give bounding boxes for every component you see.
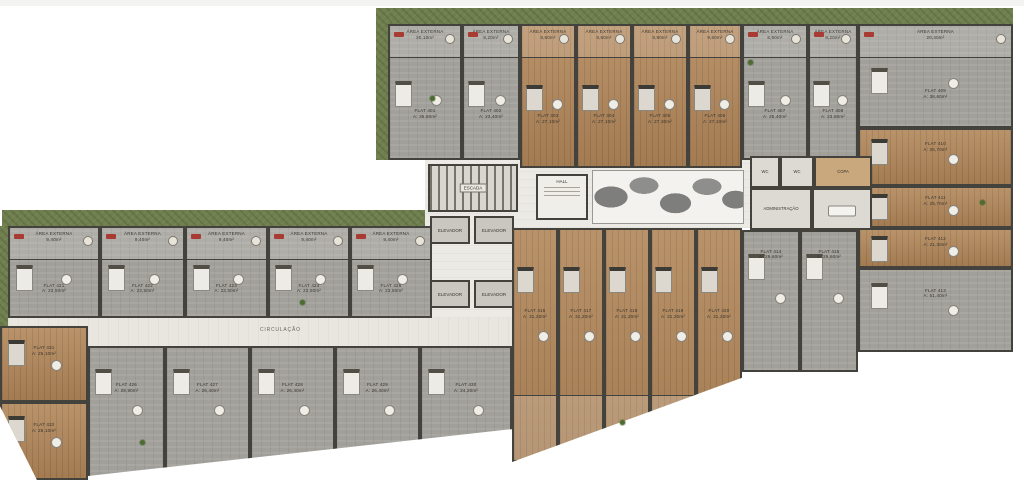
flat-unit-flat-410: FLAT 410A: 25,70m² <box>858 128 1013 186</box>
table-icon <box>615 34 625 44</box>
table-icon <box>780 95 791 106</box>
elevator-3: ELEVADOR <box>430 280 470 308</box>
flat-label: FLAT 425A: 23,50m² <box>352 283 430 295</box>
admin-copa: COPA <box>814 156 872 188</box>
sofa-icon <box>748 32 758 37</box>
flat-unit-flat-405: ÁREA EXTERNA9,80m²FLAT 405A: 27,30m² <box>632 24 688 168</box>
flat-label: FLAT 418A: 31,20m² <box>606 308 648 320</box>
table-icon <box>719 99 730 110</box>
flat-label: FLAT 422A: 23,50m² <box>102 283 183 295</box>
balcony: ÁREA EXTERNA9,40m² <box>102 228 183 260</box>
flat-label: FLAT 424A: 23,50m² <box>270 283 348 295</box>
table-icon <box>168 236 178 246</box>
staircase: ESCADA <box>428 164 518 212</box>
table-icon <box>791 34 801 44</box>
table-icon <box>841 34 851 44</box>
table-icon <box>608 99 619 110</box>
hall-sign: HALL <box>536 174 588 220</box>
flat-unit-flat-425: ÁREA EXTERNA9,40m²FLAT 425A: 23,50m² <box>350 226 432 318</box>
bed-icon <box>468 81 485 107</box>
flat-label: FLAT 412A: 21,30m² <box>860 236 1011 248</box>
flat-unit-flat-402: ÁREA EXTERNA8,20m²FLAT 402A: 23,40m² <box>462 24 520 160</box>
flat-label: FLAT 416A: 31,20m² <box>514 308 556 320</box>
table-icon <box>503 34 513 44</box>
table-icon <box>51 360 62 371</box>
table-icon <box>833 293 844 304</box>
flat-label: FLAT 406A: 27,10m² <box>690 113 740 125</box>
sofa-icon <box>274 234 284 239</box>
table-icon <box>996 34 1006 44</box>
flat-label: FLAT 413A: 61,40m² <box>860 288 1011 300</box>
balcony: ÁREA EXTERNA9,40m² <box>187 228 266 260</box>
table-icon <box>948 154 959 165</box>
table-icon <box>333 236 343 246</box>
flat-label: FLAT 423A: 23,50m² <box>187 283 266 295</box>
plant-icon <box>980 200 985 205</box>
flat-label: FLAT 404A: 27,10m² <box>578 113 630 125</box>
bed-icon <box>748 81 765 107</box>
floorplan: CIRCULAÇÃO ÁREA EXTERNA30,10m²FLAT 401A:… <box>0 0 1024 496</box>
balcony: ÁREA EXTERNA9,40m² <box>270 228 348 260</box>
table-icon <box>584 331 595 342</box>
balcony: ÁREA EXTERNA9,60m² <box>690 26 740 58</box>
table-icon <box>251 236 261 246</box>
flat-unit-flat-421: ÁREA EXTERNA9,40m²FLAT 421A: 23,50m² <box>8 226 100 318</box>
flat-unit-flat-413: FLAT 413A: 61,40m² <box>858 268 1013 352</box>
sofa-icon <box>191 234 201 239</box>
sofa-icon <box>394 32 404 37</box>
flat-label: FLAT 415A: 29,60m² <box>802 249 856 261</box>
table-icon <box>676 331 687 342</box>
flat-unit-flat-422: ÁREA EXTERNA9,40m²FLAT 422A: 23,50m² <box>100 226 185 318</box>
plant-icon <box>140 440 145 445</box>
sofa-icon <box>814 32 824 37</box>
hall-mosaic-floor <box>592 170 744 224</box>
table-icon <box>559 34 569 44</box>
flat-label: FLAT 403A: 27,10m² <box>522 113 574 125</box>
balcony: ÁREA EXTERNA9,40m² <box>352 228 430 260</box>
bed-icon <box>517 267 534 293</box>
table-icon <box>384 405 395 416</box>
balcony: ÁREA EXTERNA30,10m² <box>390 26 460 58</box>
table-icon <box>671 34 681 44</box>
flat-label: FLAT 407A: 25,40m² <box>744 108 806 120</box>
balcony: ÁREA EXTERNA9,40m² <box>10 228 98 260</box>
table-icon <box>722 331 733 342</box>
flat-unit-flat-416: FLAT 416A: 31,20m² <box>512 228 558 462</box>
table-icon <box>630 331 641 342</box>
flat-unit-flat-407: ÁREA EXTERNA8,90m²FLAT 407A: 25,40m² <box>742 24 808 160</box>
flat-unit-flat-409: ÁREA EXTERNA20,40m²FLAT 409A: 38,60m² <box>858 24 1013 128</box>
balcony: ÁREA EXTERNA8,90m² <box>744 26 806 58</box>
bed-icon <box>526 85 543 111</box>
flat-label: FLAT 421A: 23,50m² <box>10 283 98 295</box>
table-icon <box>837 95 848 106</box>
flat-unit-flat-423: ÁREA EXTERNA9,40m²FLAT 423A: 23,50m² <box>185 226 268 318</box>
flat-label: FLAT 405A: 27,30m² <box>634 113 686 125</box>
bed-icon <box>395 81 412 107</box>
table-icon <box>552 99 563 110</box>
table-icon <box>495 95 506 106</box>
plant-icon <box>300 300 305 305</box>
flat-label: FLAT 409A: 38,60m² <box>860 88 1011 100</box>
sofa-icon <box>106 234 116 239</box>
flat-unit-flat-408: ÁREA EXTERNA8,20m²FLAT 408A: 23,80m² <box>808 24 858 160</box>
bed-icon <box>563 267 580 293</box>
table-icon <box>51 437 62 448</box>
flat-label: FLAT 417A: 31,20m² <box>560 308 602 320</box>
plant-icon <box>620 420 625 425</box>
flat-label: FLAT 414A: 29,60m² <box>744 249 798 261</box>
plant-icon <box>748 60 753 65</box>
balcony: ÁREA EXTERNA8,20m² <box>810 26 856 58</box>
balcony: ÁREA EXTERNA9,60m² <box>578 26 630 58</box>
bed-icon <box>694 85 711 111</box>
sofa-icon <box>468 32 478 37</box>
sofa-icon <box>864 32 874 37</box>
flat-label: FLAT 432A: 25,10m² <box>2 422 86 434</box>
flat-unit-flat-401: ÁREA EXTERNA30,10m²FLAT 401A: 35,80m² <box>388 24 462 160</box>
sofa-icon <box>14 234 24 239</box>
elevator-2: ELEVADOR <box>474 216 514 244</box>
flat-label: FLAT 420A: 31,20m² <box>698 308 740 320</box>
admin-wc2: WC <box>780 156 814 188</box>
flat-unit-flat-414: FLAT 414A: 29,60m² <box>742 230 800 372</box>
flat-label: FLAT 430A: 24,20m² <box>422 382 510 394</box>
sofa-icon <box>356 234 366 239</box>
bed-icon <box>638 85 655 111</box>
flat-label: FLAT 419A: 31,20m² <box>652 308 694 320</box>
flat-label: FLAT 408A: 23,80m² <box>810 108 856 120</box>
flat-unit-flat-403: ÁREA EXTERNA9,60m²FLAT 403A: 27,10m² <box>520 24 576 168</box>
table-icon <box>725 34 735 44</box>
table-icon <box>775 293 786 304</box>
elevator-1: ELEVADOR <box>430 216 470 244</box>
flat-label: FLAT 402A: 23,40m² <box>464 108 518 120</box>
balcony: ÁREA EXTERNA9,60m² <box>522 26 574 58</box>
flat-unit-flat-424: ÁREA EXTERNA9,40m²FLAT 424A: 23,50m² <box>268 226 350 318</box>
bed-icon <box>813 81 830 107</box>
elevator-4: ELEVADOR <box>474 280 514 308</box>
admin-meeting-room: SALA <box>812 188 872 230</box>
bed-icon <box>609 267 626 293</box>
flat-unit-flat-415: FLAT 415A: 29,60m² <box>800 230 858 372</box>
bed-icon <box>701 267 718 293</box>
flat-unit-flat-412: FLAT 412A: 21,30m² <box>858 228 1013 268</box>
flat-unit-flat-406: ÁREA EXTERNA9,60m²FLAT 406A: 27,10m² <box>688 24 742 168</box>
balcony: ÁREA EXTERNA20,40m² <box>860 26 1011 58</box>
flat-label: FLAT 428A: 26,40m² <box>252 382 333 394</box>
table-icon <box>132 405 143 416</box>
bed-icon <box>582 85 599 111</box>
balcony: ÁREA EXTERNA8,20m² <box>464 26 518 58</box>
flat-label: FLAT 429A: 26,40m² <box>337 382 418 394</box>
flat-label: FLAT 426A: 28,90m² <box>90 382 163 394</box>
bed-icon <box>655 267 672 293</box>
table-icon <box>83 236 93 246</box>
flat-label: FLAT 401A: 35,80m² <box>390 108 460 120</box>
flat-label: FLAT 410A: 25,70m² <box>860 141 1011 153</box>
flat-label: FLAT 411A: 25,70m² <box>860 195 1011 207</box>
table-icon <box>445 34 455 44</box>
flat-label: FLAT 427A: 26,40m² <box>167 382 248 394</box>
flat-unit-flat-417: FLAT 417A: 31,20m² <box>558 228 604 462</box>
flat-label: FLAT 431A: 25,10m² <box>2 345 86 357</box>
balcony: ÁREA EXTERNA9,80m² <box>634 26 686 58</box>
table-icon <box>948 305 959 316</box>
table-icon <box>473 405 484 416</box>
hall-sign-label: HALL <box>556 179 567 184</box>
flat-unit-flat-404: ÁREA EXTERNA9,60m²FLAT 404A: 27,10m² <box>576 24 632 168</box>
table-icon <box>415 236 425 246</box>
flat-unit-flat-431: FLAT 431A: 25,10m² <box>0 326 88 402</box>
flat-unit-flat-411: FLAT 411A: 25,70m² <box>858 186 1013 228</box>
stairs-label: ESCADA <box>460 184 487 193</box>
table-icon <box>214 405 225 416</box>
flat-unit-flat-426: FLAT 426A: 28,90m² <box>88 346 165 480</box>
admin-office: ADMINISTRAÇÃO <box>750 188 812 230</box>
admin-wc1: WC <box>750 156 780 188</box>
table-icon <box>299 405 310 416</box>
table-icon <box>664 99 675 110</box>
balcony-area: 20,40m² <box>860 35 1011 41</box>
table-icon <box>538 331 549 342</box>
plant-icon <box>430 96 435 101</box>
